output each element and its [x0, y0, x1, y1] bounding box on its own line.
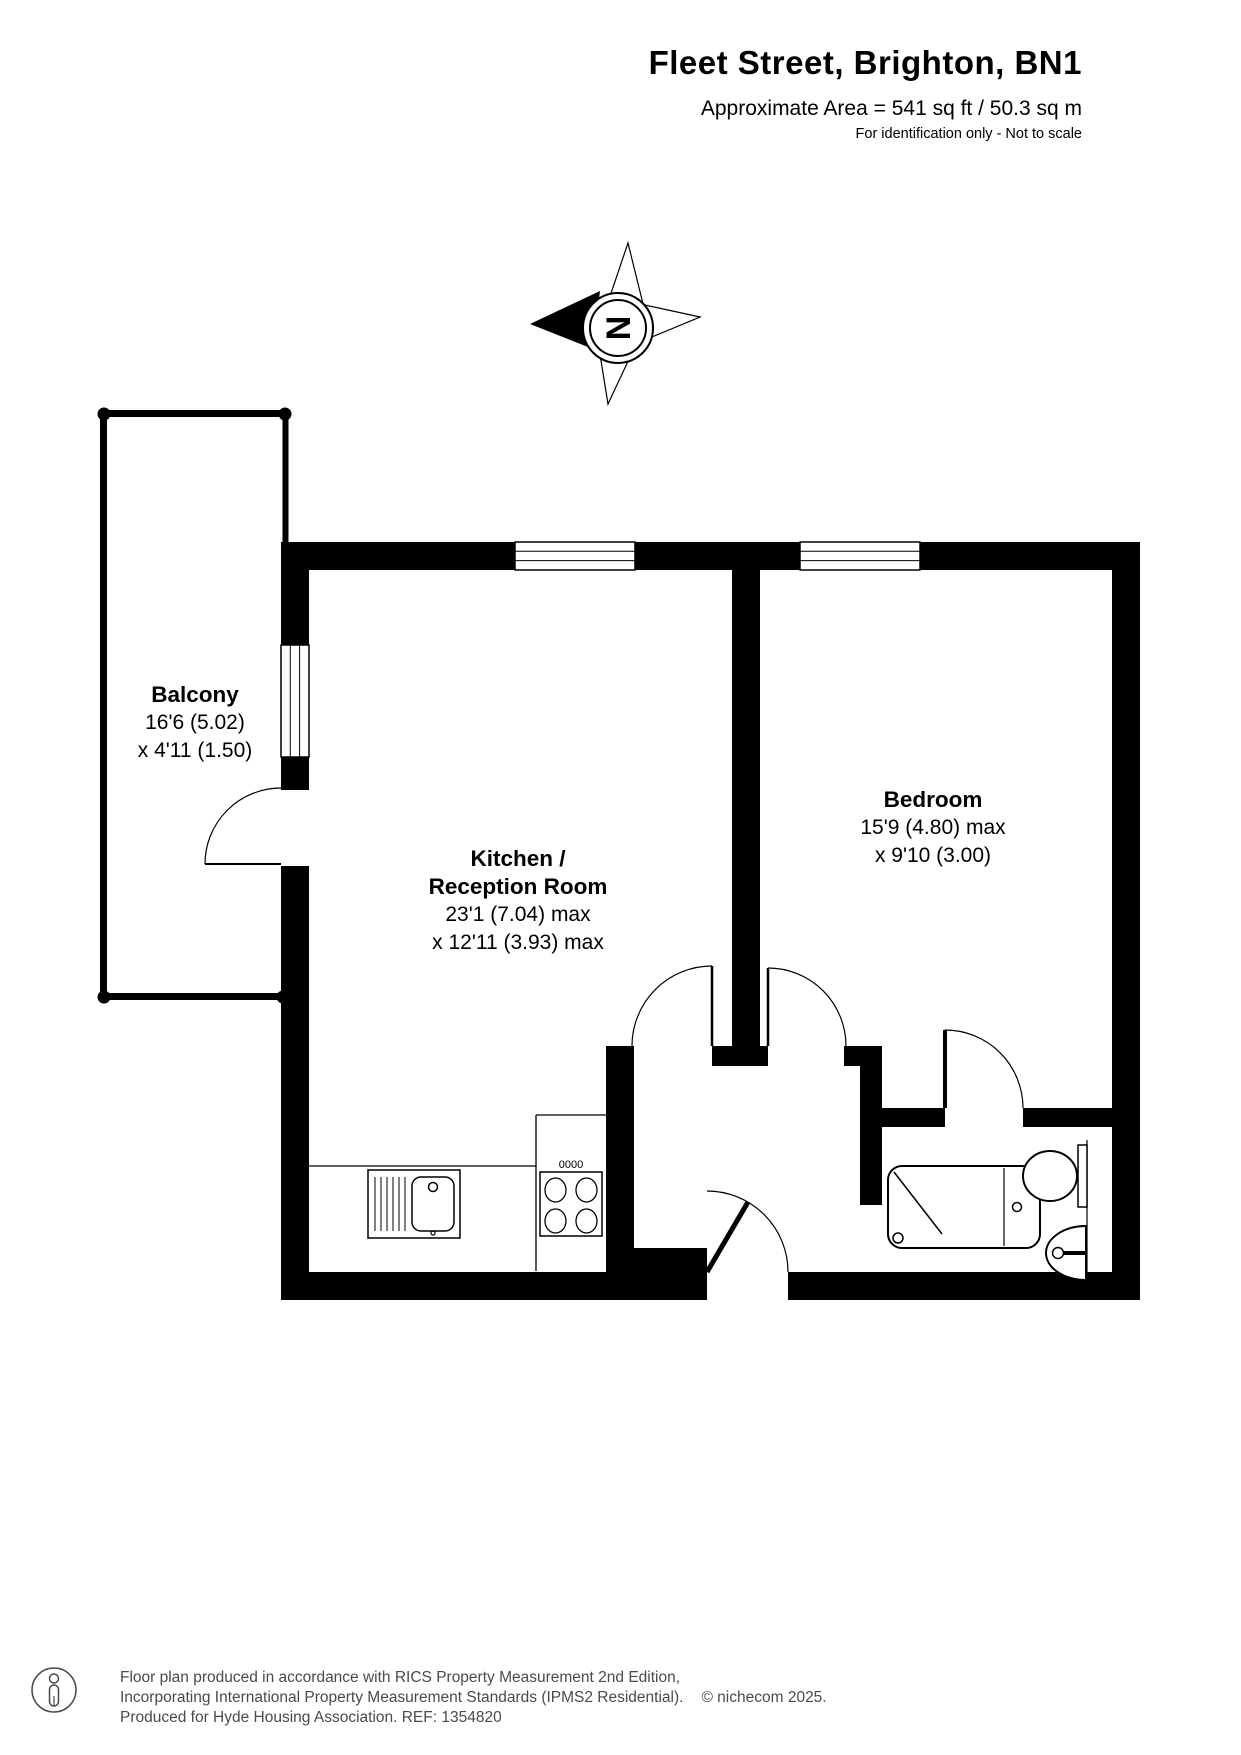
bedroom-label: Bedroom 15'9 (4.80) max x 9'10 (3.00): [860, 786, 1005, 870]
hob-knobs-label: 0000: [559, 1159, 583, 1171]
floorplan-page: Fleet Street, Brighton, BN1 Approximate …: [0, 0, 1241, 1755]
bathtub-icon: [888, 1166, 1040, 1248]
copyright: © nichecom 2025.: [683, 1689, 826, 1706]
windows: [281, 542, 920, 757]
kitchen-window: [515, 542, 635, 570]
room-dimension: x 9'10 (3.00): [860, 842, 1005, 870]
compass-north-label: N: [600, 316, 638, 341]
footer-line-3: Produced for Hyde Housing Association. R…: [120, 1708, 502, 1728]
room-name: Balcony: [138, 681, 253, 709]
balcony-label: Balcony 16'6 (5.02) x 4'11 (1.50): [138, 681, 253, 765]
kitchen-sink-icon: [368, 1170, 460, 1238]
room-name: Bedroom: [860, 786, 1005, 814]
footer-standards: Incorporating International Property Mea…: [120, 1689, 683, 1706]
bathroom-sink-icon: [1046, 1226, 1086, 1280]
bedroom-window: [800, 542, 920, 570]
room-dimension: 23'1 (7.04) max: [429, 901, 608, 929]
kitchen-reception-label: Kitchen / Reception Room 23'1 (7.04) max…: [429, 845, 608, 957]
balcony-window: [281, 645, 309, 757]
balcony-door: [205, 788, 281, 864]
room-name: Kitchen /: [429, 845, 608, 873]
room-dimension: x 4'11 (1.50): [138, 737, 253, 765]
room-dimension: 15'9 (4.80) max: [860, 814, 1005, 842]
room-name: Reception Room: [429, 873, 608, 901]
footer-line-1: Floor plan produced in accordance with R…: [120, 1668, 680, 1688]
room-dimension: x 12'11 (3.93) max: [429, 929, 608, 957]
footer-line-2: Incorporating International Property Mea…: [120, 1688, 827, 1708]
entrance-door: [707, 1191, 788, 1272]
hob-icon: 0000: [540, 1159, 602, 1236]
bathroom-door: [945, 1030, 1023, 1108]
reception-door: [632, 966, 712, 1046]
person-badge-icon: [30, 1666, 78, 1714]
bedroom-door: [768, 968, 846, 1046]
room-dimension: 16'6 (5.02): [138, 709, 253, 737]
compass-rose-icon: N: [530, 243, 700, 404]
floorplan-drawing: N: [0, 0, 1241, 1755]
